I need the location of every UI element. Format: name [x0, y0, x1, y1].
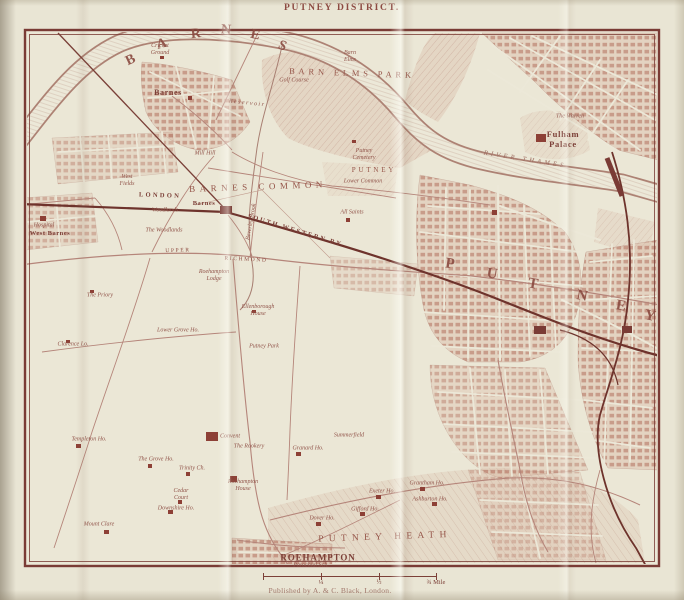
scale-bar-line	[263, 576, 437, 577]
scale-label-quarter: ¼	[319, 579, 324, 586]
map-page: PUTNEY DISTRICT.	[0, 0, 684, 600]
map-canvas	[0, 0, 684, 600]
putney-station	[534, 326, 546, 334]
scale-label-mile: ¾ Mile	[427, 579, 446, 586]
scale-tick	[263, 573, 264, 580]
scale-label-half: ½	[377, 579, 382, 586]
barnes-station	[220, 206, 232, 214]
east-putney-station	[622, 326, 632, 333]
publisher-credit: Published by A. & C. Black, London.	[0, 586, 660, 595]
map-title: PUTNEY DISTRICT.	[0, 3, 684, 13]
